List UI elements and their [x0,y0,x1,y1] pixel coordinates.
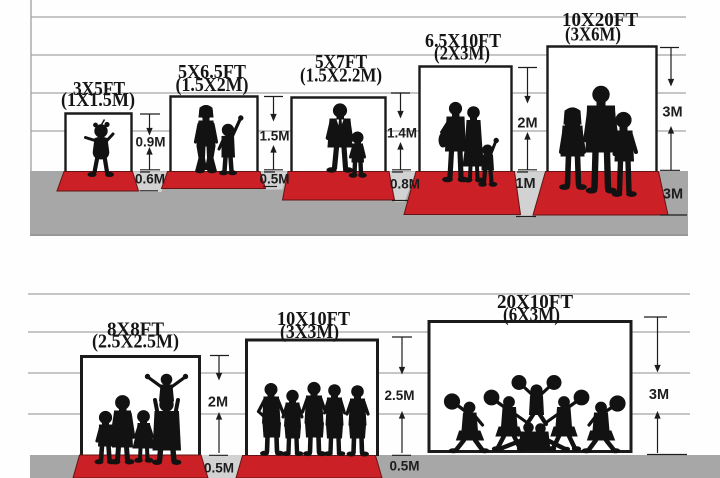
svg-text:2.5M: 2.5M [384,388,414,403]
svg-text:0.5M: 0.5M [204,461,234,476]
svg-text:1M: 1M [515,176,535,192]
svg-text:0.5M: 0.5M [389,459,419,474]
svg-text:(1.5X2.2M): (1.5X2.2M) [300,65,382,87]
svg-text:(3X3M): (3X3M) [280,321,339,343]
svg-text:1.4M: 1.4M [387,126,417,141]
svg-text:(2.5X2.5M): (2.5X2.5M) [92,331,179,353]
svg-text:3M: 3M [663,187,683,203]
svg-text:0.5M: 0.5M [259,172,289,187]
svg-text:3M: 3M [649,387,669,403]
svg-text:(6X3M): (6X3M) [503,304,560,326]
svg-text:(3X6M): (3X6M) [565,24,621,46]
svg-text:0.8M: 0.8M [390,177,420,192]
svg-text:(1.5X2M): (1.5X2M) [176,74,249,96]
svg-text:2M: 2M [208,395,228,411]
svg-text:(1X1.5M): (1X1.5M) [61,89,135,111]
svg-text:(2X3M): (2X3M) [434,43,490,65]
svg-text:2M: 2M [517,116,537,132]
svg-text:3M: 3M [662,105,682,121]
svg-text:0.9M: 0.9M [135,135,165,150]
svg-text:0.6M: 0.6M [135,172,165,187]
svg-text:1.5M: 1.5M [259,129,289,144]
